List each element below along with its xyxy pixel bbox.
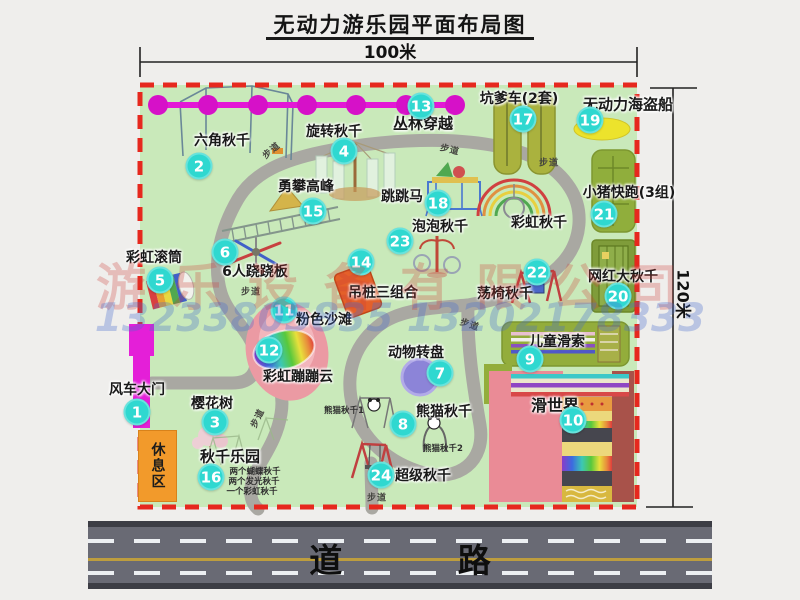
attraction-badge-13: 13	[408, 93, 435, 120]
road-band: 道 路	[88, 521, 712, 589]
attraction-badge-3: 3	[202, 409, 229, 436]
attraction-sublabel: 熊猫秋千1	[324, 404, 364, 416]
attraction-label-rainbow-swing: 彩虹秋千	[511, 212, 567, 232]
attraction-label-21: 小猪快跑(3组)	[583, 182, 676, 202]
attraction-badge-10: 10	[560, 407, 587, 434]
height-dimension-label: 120米	[673, 269, 697, 318]
attraction-sublabel: 熊猫秋千2	[423, 442, 463, 454]
attraction-badge-17: 17	[510, 106, 537, 133]
attraction-badge-9: 9	[517, 346, 544, 373]
attraction-label-2: 六角秋千	[194, 130, 250, 150]
park-plan-image: 无动力游乐园平面布局图 100米 120米 休息区 风车大门1六角秋千2樱花树3…	[0, 0, 800, 600]
attraction-badge-16: 16	[198, 464, 225, 491]
attraction-badge-2: 2	[186, 153, 213, 180]
attraction-badge-5: 5	[147, 267, 174, 294]
attraction-badge-4: 4	[331, 138, 358, 165]
road-label: 道 路	[88, 534, 712, 582]
attraction-badge-7: 7	[427, 360, 454, 387]
attraction-badge-22: 22	[524, 259, 551, 286]
attraction-badge-21: 21	[591, 201, 618, 228]
attraction-label-6: 6人跷跷板	[222, 261, 288, 281]
attraction-label-11: 粉色沙滩	[296, 309, 352, 329]
slide-world-area	[484, 364, 634, 502]
attraction-badge-24: 24	[368, 462, 395, 489]
attraction-badge-11: 11	[271, 297, 298, 324]
attraction-badge-23: 23	[387, 228, 414, 255]
width-dimension-label: 100米	[330, 38, 450, 63]
attraction-label-24: 超级秋千	[395, 465, 451, 485]
attraction-label-5: 彩虹滚筒	[126, 247, 182, 267]
walkway-label: 步道	[241, 285, 261, 298]
attraction-badge-18: 18	[425, 190, 452, 217]
attraction-badge-15: 15	[300, 198, 327, 225]
attraction-badge-12: 12	[256, 337, 283, 364]
attraction-label-8: 熊猫秋千	[416, 401, 472, 421]
rest-area-label: 休息区	[148, 442, 168, 490]
page-title: 无动力游乐园平面布局图	[0, 9, 800, 39]
rest-area-block: 休息区	[138, 430, 177, 502]
walkway-label: 步道	[539, 156, 559, 169]
attraction-badge-6: 6	[212, 239, 239, 266]
attraction-badge-20: 20	[605, 283, 632, 310]
attraction-label-23: 泡泡秋千	[412, 216, 468, 236]
attraction-label-1: 风车大门	[109, 379, 165, 399]
attraction-badge-14: 14	[348, 249, 375, 276]
attraction-label-22: 荡椅秋千	[477, 283, 533, 303]
attraction-sublabel: 一个彩虹秋千	[226, 485, 277, 497]
attraction-label-14: 吊桩三组合	[348, 282, 418, 302]
attraction-badge-8: 8	[390, 411, 417, 438]
walkway-label: 步道	[367, 491, 387, 504]
attraction-badge-19: 19	[577, 107, 604, 134]
attraction-label-15: 勇攀高峰	[278, 176, 334, 196]
attraction-label-18: 跳跳马	[381, 186, 423, 206]
attraction-badge-1: 1	[124, 399, 151, 426]
attraction-label-12: 彩虹蹦蹦云	[263, 366, 333, 386]
attraction-label-4: 旋转秋千	[306, 121, 362, 141]
